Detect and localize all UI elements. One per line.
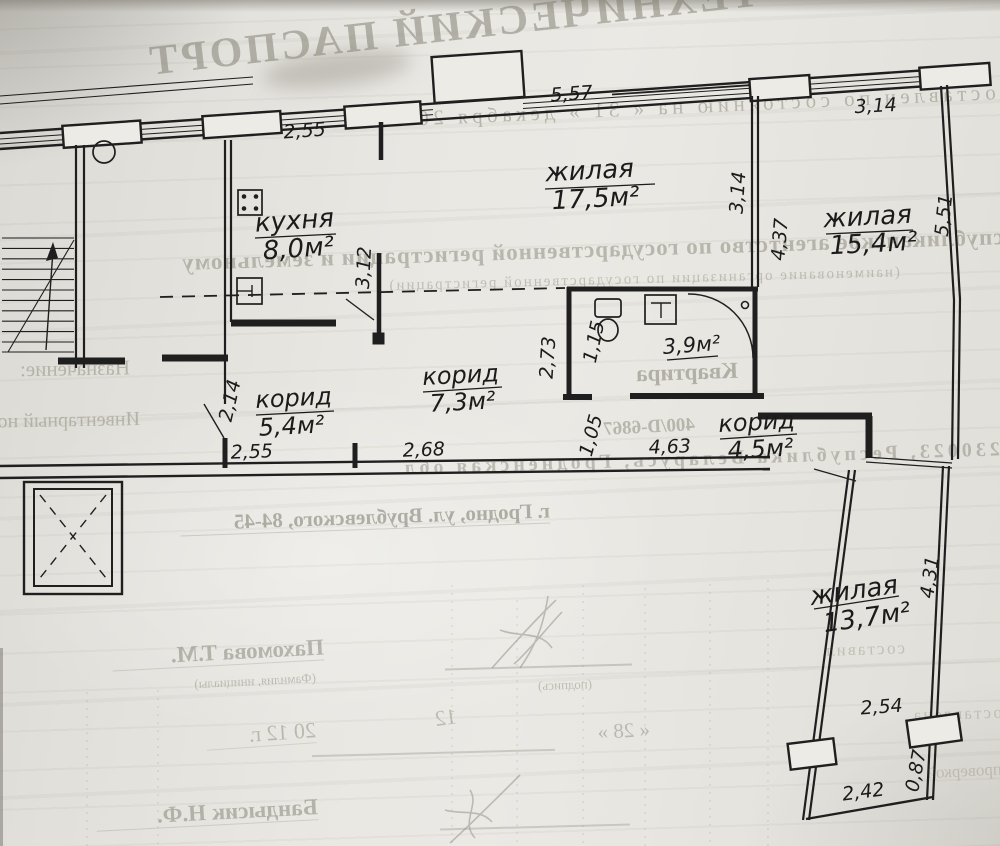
dim-living13-bottom: 2,42 xyxy=(841,779,886,806)
staircase xyxy=(2,238,74,352)
dim-corridor54-depth: 2,14 xyxy=(215,378,246,424)
kitchen-sink-icon xyxy=(237,278,262,304)
room-bathroom-area: 3,9м² xyxy=(662,331,722,359)
plan-walls xyxy=(0,51,991,820)
dim-partition: 3,12 xyxy=(352,246,376,289)
kitchen-partition xyxy=(346,122,384,344)
door-pivot-dot xyxy=(742,302,749,309)
dim-living15-left-lower: 4,37 xyxy=(767,217,793,261)
bay-projection xyxy=(432,51,525,103)
bleed-dotted-columns xyxy=(87,580,768,846)
pier-right xyxy=(906,714,961,748)
dim-corridor45-left: 1,05 xyxy=(575,412,607,459)
adjacent-balcony-edge xyxy=(0,77,253,104)
living13-walls xyxy=(788,466,962,820)
kitchen-door-leaf xyxy=(346,299,374,320)
pier-left xyxy=(788,738,837,769)
dim-bath-inner: 1,15 xyxy=(579,319,609,365)
wall-piers xyxy=(62,51,990,148)
dim-living15-left-upper: 3,14 xyxy=(726,171,751,215)
east-wall xyxy=(941,85,960,460)
dim-living15-right: 5,51 xyxy=(931,193,957,237)
dim-bath-left: 2,73 xyxy=(536,336,561,380)
room-corridor54-name: корид xyxy=(255,382,333,414)
scanned-floor-plan-page: ТЕХНИЧЕСКИЙ ПАСПОРТ составлен по состоян… xyxy=(0,0,1000,846)
stairwell-wall xyxy=(58,145,228,368)
dim-corridor45-width: 4,63 xyxy=(648,435,691,458)
living15-left-wall xyxy=(752,96,758,287)
elevator-shaft xyxy=(24,482,122,594)
dim-living13-right: 4,31 xyxy=(916,555,944,600)
dim-living13-mid: 2,54 xyxy=(860,695,904,720)
dim-living13-small: 0,87 xyxy=(901,748,931,794)
floor-plan-drawing: кухня 8,0м² жилая 17,5м² жилая 15,4м² жи… xyxy=(0,0,1000,846)
bath-sink-icon xyxy=(645,295,676,324)
dim-corridor73-width: 2,68 xyxy=(402,438,445,461)
dim-corridor54-width: 2,55 xyxy=(230,440,273,463)
dim-kitchen-top: 2,55 xyxy=(283,119,327,144)
pencil-signature-marks xyxy=(445,596,562,843)
dim-living15-top: 3,14 xyxy=(854,94,897,118)
dim-living17-top: 5,57 xyxy=(550,82,594,107)
